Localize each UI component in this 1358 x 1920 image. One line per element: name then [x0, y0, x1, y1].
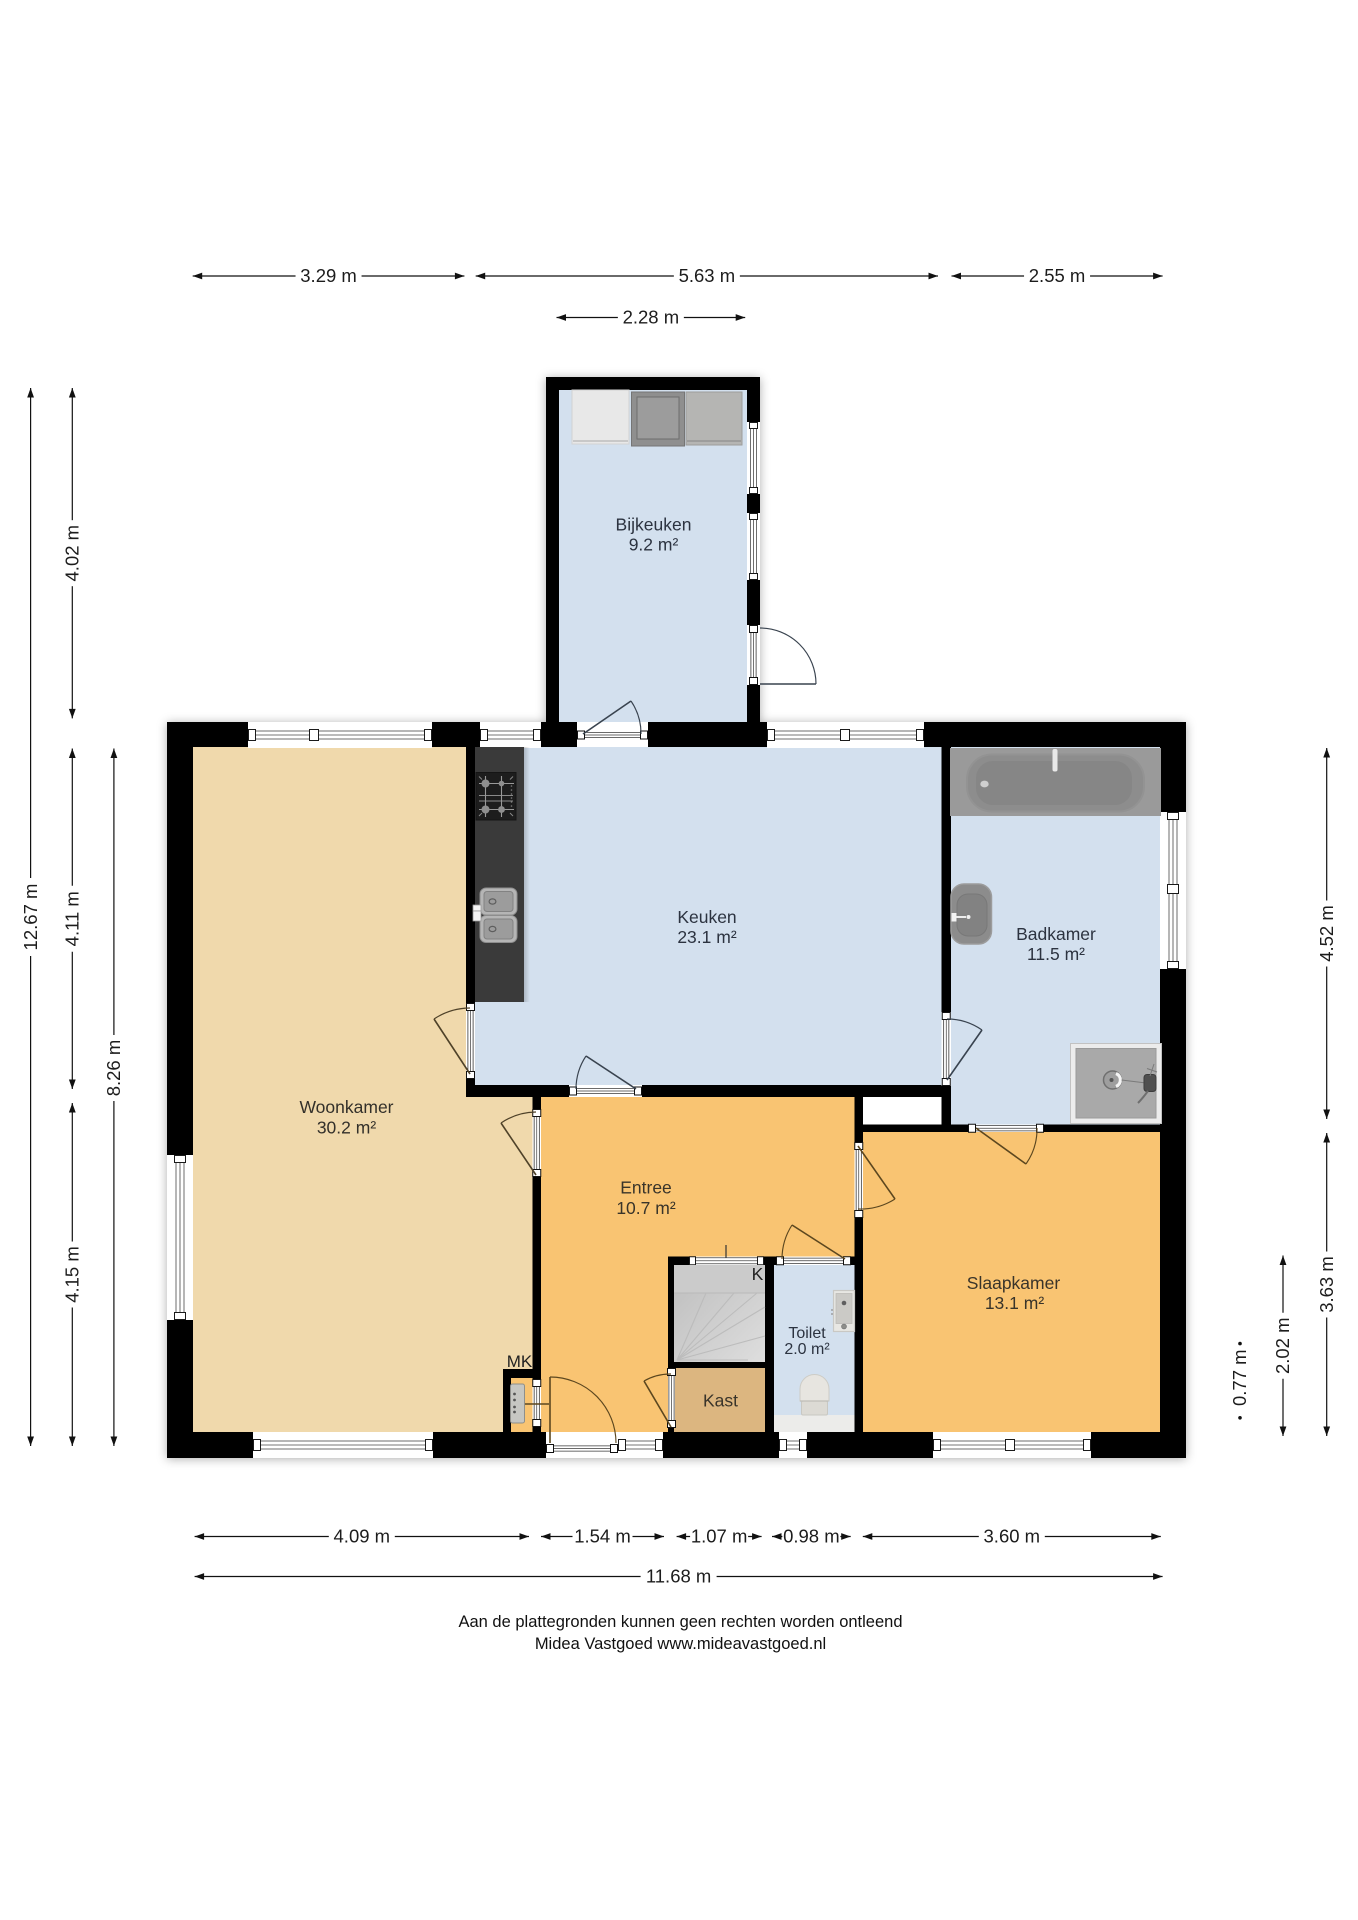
- svg-text:3.63 m: 3.63 m: [1316, 1256, 1337, 1313]
- svg-text:4.11 m: 4.11 m: [62, 891, 83, 946]
- svg-text:K: K: [752, 1264, 764, 1284]
- svg-text:4.02 m: 4.02 m: [62, 525, 83, 582]
- svg-text:0.77 m: 0.77 m: [1229, 1349, 1250, 1406]
- svg-text:Toilet: Toilet: [788, 1325, 826, 1342]
- svg-text:Bijkeuken: Bijkeuken: [616, 515, 692, 535]
- svg-text:11.68 m: 11.68 m: [646, 1566, 711, 1587]
- svg-text:4.15 m: 4.15 m: [62, 1246, 83, 1303]
- svg-text:2.28 m: 2.28 m: [623, 307, 680, 328]
- svg-text:Slaapkamer: Slaapkamer: [967, 1273, 1061, 1293]
- svg-text:3.29 m: 3.29 m: [300, 265, 357, 286]
- svg-text:Entree: Entree: [620, 1178, 672, 1198]
- svg-text:1.07 m: 1.07 m: [691, 1526, 748, 1547]
- svg-text:4.09 m: 4.09 m: [334, 1526, 391, 1547]
- svg-text:8.26 m: 8.26 m: [103, 1040, 124, 1097]
- svg-text:13.1 m²: 13.1 m²: [985, 1293, 1044, 1313]
- svg-text:Badkamer: Badkamer: [1016, 924, 1096, 944]
- svg-text:1.54 m: 1.54 m: [574, 1526, 631, 1547]
- svg-text:Midea Vastgoed www.mideavastgo: Midea Vastgoed www.mideavastgoed.nl: [535, 1635, 826, 1653]
- svg-text:Kast: Kast: [703, 1391, 738, 1411]
- svg-text:Woonkamer: Woonkamer: [299, 1097, 393, 1117]
- svg-text:30.2 m²: 30.2 m²: [317, 1118, 376, 1138]
- svg-text:MK: MK: [507, 1352, 533, 1371]
- svg-text:11.5 m²: 11.5 m²: [1027, 944, 1085, 964]
- svg-text:2.02 m: 2.02 m: [1272, 1317, 1293, 1374]
- svg-text:Aan de plattegronden kunnen ge: Aan de plattegronden kunnen geen rechten…: [458, 1613, 902, 1631]
- svg-text:2.0 m²: 2.0 m²: [784, 1341, 830, 1358]
- svg-text:23.1 m²: 23.1 m²: [677, 927, 736, 947]
- svg-text:Keuken: Keuken: [677, 907, 736, 927]
- svg-text:5.63 m: 5.63 m: [679, 265, 736, 286]
- svg-text:3.60 m: 3.60 m: [984, 1526, 1041, 1547]
- svg-text:4.52 m: 4.52 m: [1316, 905, 1337, 962]
- svg-text:9.2 m²: 9.2 m²: [629, 535, 679, 555]
- svg-text:0.98 m: 0.98 m: [783, 1526, 840, 1547]
- svg-text:10.7 m²: 10.7 m²: [616, 1198, 675, 1218]
- svg-text:2.55 m: 2.55 m: [1029, 265, 1086, 286]
- svg-text:12.67 m: 12.67 m: [20, 884, 41, 951]
